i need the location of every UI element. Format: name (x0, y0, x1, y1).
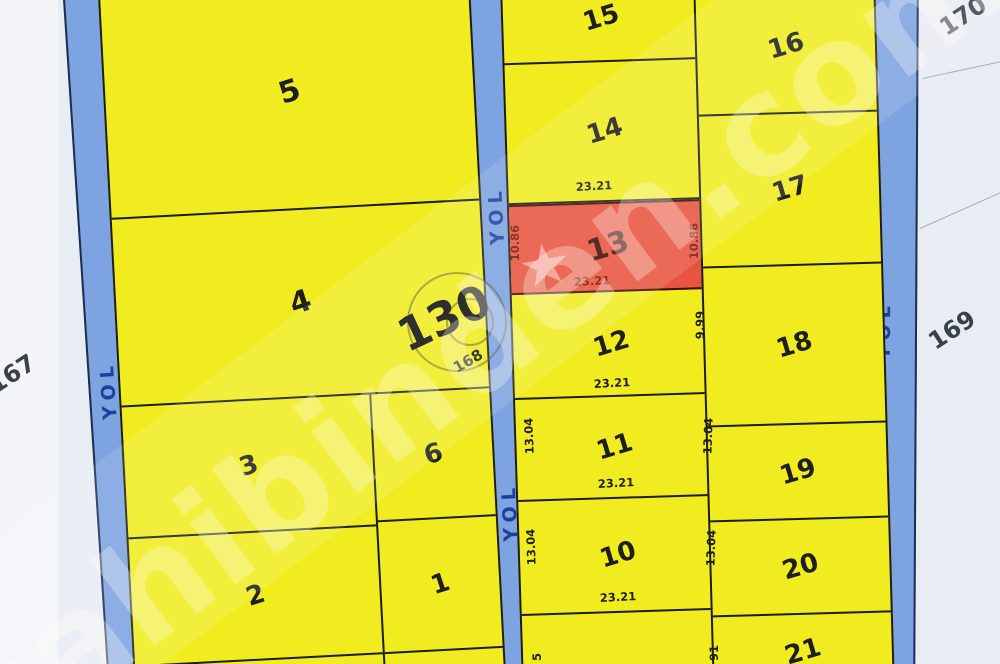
parcel-subcolumn-right: 6 1 (369, 388, 504, 664)
map-background-left-strip (0, 0, 58, 664)
parcel-5-number: 5 (275, 75, 304, 110)
parcel-11-number: 11 (593, 429, 635, 464)
dim-label-1304-right-10: 13.04 (703, 530, 718, 567)
dim-label-999: 9.99 (693, 311, 707, 339)
parcel-split-row: 3 2 6 1 (122, 388, 505, 664)
parcel-9-cut (522, 610, 720, 664)
parcel-15-number: 15 (580, 0, 622, 35)
parcel-17: 17 (699, 112, 881, 269)
parcel-1-number: 1 (428, 569, 453, 599)
block-number-170: 170 (934, 0, 991, 41)
parcel-17-number: 17 (769, 171, 811, 206)
dim-label-cut-left: 5 (530, 653, 544, 661)
parcel-boundary-faint-line (920, 191, 1000, 229)
parcel-subcolumn-left: 3 2 (122, 395, 385, 664)
dim-label-2321: 23.21 (575, 178, 612, 194)
block-number-169: 169 (923, 305, 980, 356)
parcel-18-number: 18 (773, 327, 815, 362)
parcel-6: 6 (371, 388, 496, 522)
parcel-4-number: 4 (286, 286, 315, 321)
dim-label-1304-left-11: 13.04 (521, 418, 536, 455)
parcel-20: 20 (710, 517, 891, 617)
parcel-18: 18 (703, 264, 885, 428)
dim-label-1086-left: 10.86 (508, 225, 522, 261)
parcel-5: 5 (100, 0, 480, 220)
parcel-21-number: 21 (782, 634, 824, 664)
dim-label-2321-parcel13: 23.21 (573, 273, 610, 289)
parcel-1: 1 (378, 516, 503, 654)
road-label-yol-middle-top: YOL (484, 185, 509, 245)
parcel-16: 16 (695, 0, 877, 117)
parcel-13-number: 13 (584, 227, 633, 268)
dim-label-2321-parcel11: 23.21 (597, 475, 634, 491)
parcel-boundary-faint-line (922, 61, 1000, 79)
dim-label-1304-left-10: 13.04 (523, 529, 538, 566)
dim-label-1086-right: 10.86 (687, 223, 701, 259)
parcel-2-number: 2 (243, 581, 268, 611)
dim-label-2321-parcel12: 23.21 (593, 375, 630, 391)
parcel-3: 3 (122, 395, 377, 540)
parcel-21-cut: 21 (713, 612, 893, 664)
parcel-12-number: 12 (590, 326, 632, 361)
dim-label-2321-parcel10: 23.21 (599, 589, 636, 605)
parcel-19-number: 19 (777, 454, 819, 489)
parcel-block-right-column: 16 17 18 19 20 21 (693, 0, 895, 664)
parcel-15: 15 (502, 0, 701, 65)
parcel-14-number: 14 (584, 113, 626, 148)
parcel-6-number: 6 (421, 439, 446, 469)
parcel-2: 2 (129, 526, 383, 664)
parcel-16-number: 16 (765, 28, 807, 63)
dim-label-1304-right-11: 13.04 (700, 418, 715, 455)
cadastral-map: YOL YOL YOL YOL 5 4 3 2 (0, 0, 1000, 664)
parcel-20-number: 20 (779, 549, 821, 584)
parcel-19: 19 (708, 422, 889, 522)
parcel-10-number: 10 (597, 537, 639, 572)
dim-label-cut-right: 91 (707, 645, 721, 661)
parcel-3-number: 3 (236, 451, 261, 481)
